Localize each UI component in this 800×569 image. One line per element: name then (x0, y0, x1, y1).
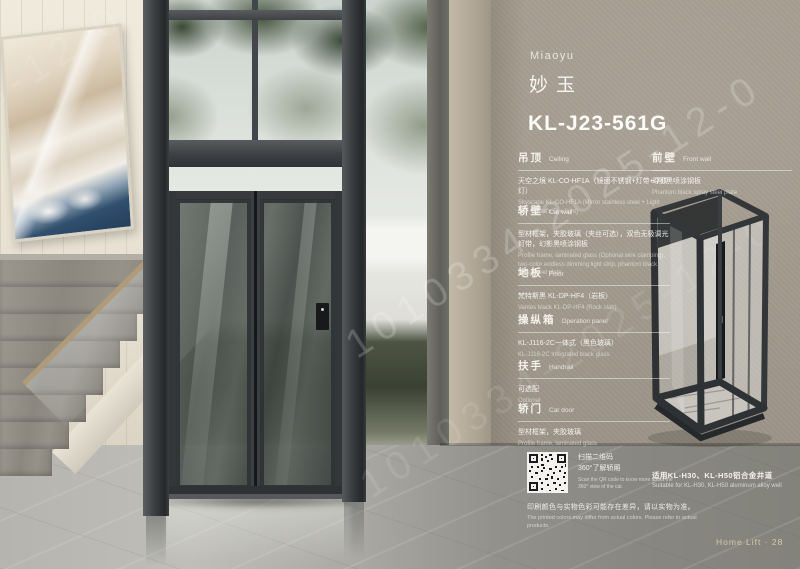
spec-desc-en: Phantom black spray steel plate (652, 189, 792, 197)
spec-desc-cn: 天空之境 KL-CO-HF1A（镜面不锈钢+灯带+平顶灯） (518, 177, 670, 197)
spec-title-en: Handrail (549, 364, 573, 371)
column-reflection (146, 516, 166, 566)
color-disclaimer: 印刷颜色与实物色彩可能存在差异，请以实物为准。 The printed colo… (527, 502, 705, 531)
spec-section-operation-panel: 操纵箱 Operation panel KL-J116-2C一体式（黑色玻璃） … (518, 312, 670, 360)
spec-header: 轿壁 Car wall (518, 203, 670, 224)
spec-desc-cn: 型材框架，夹胶玻璃 (518, 428, 670, 438)
spec-desc-cn: 梵特斯黑 KL-DP-HF4（岩板） (518, 292, 670, 302)
spec-title-en: Ceiling (549, 156, 569, 163)
spec-header: 地板 Floor (518, 265, 670, 286)
spec-title-en: Car wall (549, 209, 572, 216)
spec-title-cn: 轿门 (518, 401, 543, 416)
qr-caption-line1: 扫描二维码 (578, 453, 678, 464)
model-number: KL-J23-561G (528, 112, 667, 136)
spec-section-handrail: 扶手 Handrail 可选配 Optional (518, 358, 670, 406)
spec-title-cn: 扶手 (518, 358, 543, 373)
compatibility-en: Suitable for KL-H30, KL-H50 aluminum all… (652, 483, 800, 489)
disclaimer-cn: 印刷颜色与实物色彩可能存在差异，请以实物为准。 (527, 502, 705, 512)
elevator-column-left (143, 0, 169, 516)
page-label: Home Lift · 28 (716, 537, 783, 547)
spec-header: 轿门 Car door (518, 401, 670, 422)
spec-desc-cn: 幻影黑喷涂钢板 (652, 177, 792, 187)
door-bottom-rail (169, 486, 342, 494)
compatibility-cn: 适用KL-H30、KL-H50铝合金井道 (652, 470, 800, 481)
elevator-header-beam (145, 140, 366, 167)
beige-wall (449, 0, 491, 447)
column-reflection (344, 502, 364, 558)
floor-reflection (165, 505, 351, 565)
spec-title-en: Operation panel (562, 318, 608, 325)
door-panel-left (176, 199, 251, 489)
brand-name-en: Miaoyu (530, 50, 574, 62)
spec-title-cn: 操纵箱 (518, 312, 556, 327)
shaft-glass-mullion (252, 0, 258, 145)
spec-title-en: Car door (549, 407, 574, 414)
door-jamb-left (169, 191, 176, 493)
spec-header: 操纵箱 Operation panel (518, 312, 670, 333)
gray-wall (427, 0, 449, 447)
spec-desc-cn: KL-J116-2C一体式（黑色玻璃） (518, 339, 670, 349)
spec-title-cn: 前壁 (652, 150, 677, 165)
spec-section-front-wall: 前壁 Front wall 幻影黑喷涂钢板 Phantom black spra… (652, 150, 792, 198)
door-control-box (316, 303, 329, 330)
disclaimer-en: The printed colors may differ from actua… (527, 515, 705, 531)
spec-header: 吊顶 Ceiling (518, 150, 670, 171)
brand-name-cn: 妙玉 (529, 70, 583, 97)
spec-desc-cn: 可选配 (518, 385, 670, 395)
compatibility-note: 适用KL-H30、KL-H50铝合金井道 Suitable for KL-H30… (652, 470, 800, 489)
spec-title-en: Floor (549, 271, 564, 278)
qr-code (527, 452, 568, 493)
spec-title-cn: 吊顶 (518, 150, 543, 165)
spec-header: 前壁 Front wall (652, 150, 792, 171)
elevator-column-right (342, 0, 366, 502)
spec-section-floor: 地板 Floor 梵特斯黑 KL-DP-HF4（岩板） Vantes black… (518, 265, 670, 313)
spec-header: 扶手 Handrail (518, 358, 670, 379)
transom-glass (169, 167, 342, 193)
door-panel-right (260, 199, 335, 489)
spec-title-cn: 轿壁 (518, 203, 543, 218)
door-jamb-right (335, 191, 342, 493)
shaft-top-beam (145, 10, 366, 20)
spec-desc-en: Profile frame, laminated glass (518, 440, 670, 448)
spec-title-cn: 地板 (518, 265, 543, 280)
door-center-split (251, 191, 260, 493)
spec-desc-cn: 型材框架，夹胶玻璃（夹丝可选），双色无极调光灯带，幻影黑喷涂钢板 (518, 230, 670, 250)
brochure-page: 1010334-2025-12-0 1010334-2025-12-0 1010… (0, 0, 800, 569)
spec-title-en: Front wall (683, 156, 711, 163)
spec-section-car-door: 轿门 Car door 型材框架，夹胶玻璃 Profile frame, lam… (518, 401, 670, 449)
door-threshold (160, 494, 356, 499)
